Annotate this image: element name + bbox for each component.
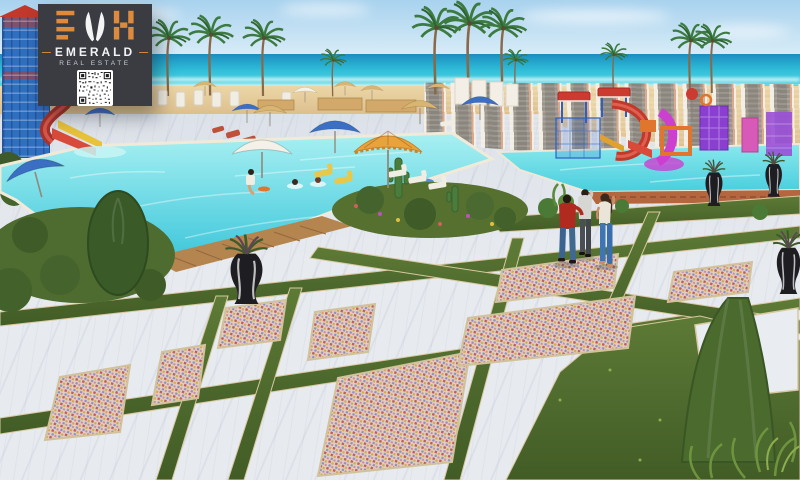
resort-render: — EMERALD — REAL ESTATE — [0, 0, 800, 480]
brand-name: EMERALD — [55, 46, 135, 59]
logo-letter-h — [114, 11, 134, 40]
palm-tree — [600, 43, 627, 92]
purple-panel — [766, 112, 792, 156]
mosaic-slab — [218, 300, 286, 348]
umbrella-straw — [361, 85, 384, 99]
red-ball — [686, 88, 698, 100]
qr-code — [77, 70, 113, 106]
umbrella-straw — [334, 82, 356, 96]
palm-tree — [444, 2, 494, 93]
mosaic-slab — [668, 262, 752, 302]
hoop — [701, 95, 711, 105]
mosaic-slab — [45, 365, 130, 440]
topiary-column — [88, 191, 148, 295]
man-gray — [578, 189, 592, 257]
mosaic-slab — [152, 345, 205, 405]
logo-letter-e — [56, 11, 74, 40]
palm-tree — [694, 25, 732, 93]
umbrella-blue — [232, 104, 262, 123]
splash — [74, 146, 126, 158]
play-fence — [556, 118, 600, 158]
umbrella-straw — [427, 83, 450, 97]
mosaic-slab — [308, 304, 375, 360]
orange-box — [640, 120, 656, 132]
beach-furniture — [158, 78, 518, 145]
logo-card: — EMERALD — REAL ESTATE — [38, 4, 152, 106]
logo-monogram — [53, 9, 137, 45]
kids-water-park — [498, 88, 800, 204]
brand-dash-right: — — [139, 48, 148, 57]
palm-tree — [320, 49, 346, 96]
palm-tree — [243, 20, 285, 96]
palm-tree — [148, 20, 190, 96]
brand-dash-left: — — [42, 48, 51, 57]
logo-letter-m — [86, 12, 105, 42]
umbrella-blue — [85, 108, 115, 127]
logo-brand-row: — EMERALD — — [42, 46, 148, 59]
palm-grove — [148, 2, 732, 97]
pink-panel — [742, 118, 758, 152]
brand-tagline: REAL ESTATE — [59, 60, 130, 67]
umbrella-white — [293, 87, 317, 102]
lounger-white — [439, 116, 455, 127]
